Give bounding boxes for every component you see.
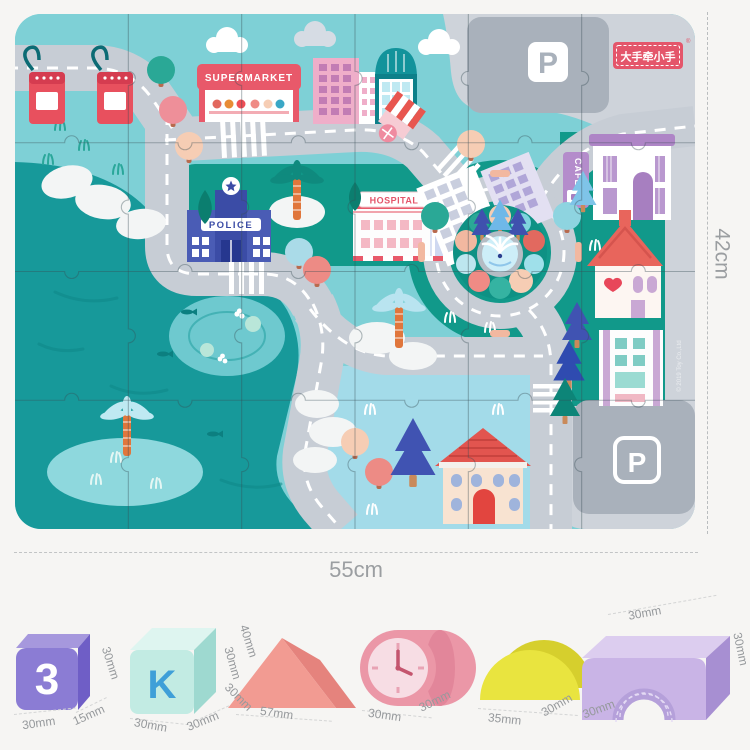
brand-logo: 大手牵小手 ® (613, 38, 691, 69)
block-arch-bridge: 30mm 30mm 30mm (572, 600, 750, 748)
lily-pad (245, 316, 261, 332)
copyright-text: © 2019 Toy Co.,Ltd (676, 340, 683, 391)
registered-mark: ® (686, 38, 691, 45)
parking-letter-top: P (538, 47, 558, 80)
parking-letter-bottom: P (628, 447, 647, 478)
block-number-tile: 3 30mm 30mm 15mm (6, 614, 124, 746)
pond (169, 296, 285, 376)
supermarket-sign: SUPERMARKET (205, 73, 293, 84)
fountain (477, 231, 523, 277)
block-clock-cylinder: 30mm 30mm (358, 612, 480, 740)
dimension-label: 30mm (21, 714, 56, 733)
apartment-building (599, 330, 663, 406)
hospital-sign: HOSPITAL (370, 196, 419, 206)
city-map-illustration: P P 大手牵小手 ® (15, 14, 695, 529)
cube-letter: K (148, 663, 177, 707)
house-door (473, 489, 495, 524)
product-dimension-page: { "brand": { "logo_text": "大手牵小手", "regi… (0, 0, 750, 750)
block-triangle-prism: 40mm 30mm 57mm (222, 606, 358, 748)
brand-logo-text: 大手牵小手 (621, 50, 676, 64)
puzzle-mat: P P 大手牵小手 ® (15, 14, 695, 529)
height-dimension-line (707, 12, 708, 534)
police-sign: POLICE (209, 220, 253, 231)
parking-sign-top: P (528, 42, 568, 82)
dimension-guide (608, 595, 717, 615)
lily-pad (200, 343, 214, 357)
supermarket-building: SUPERMARKET (197, 64, 301, 122)
cafe-door (633, 172, 653, 220)
dimension-label: 35mm (487, 710, 522, 727)
width-dimension-line (14, 552, 698, 553)
tile-digit: 3 (35, 655, 59, 704)
width-dimension-label: 55cm (296, 557, 416, 583)
height-dimension-label: 42cm (710, 228, 734, 279)
